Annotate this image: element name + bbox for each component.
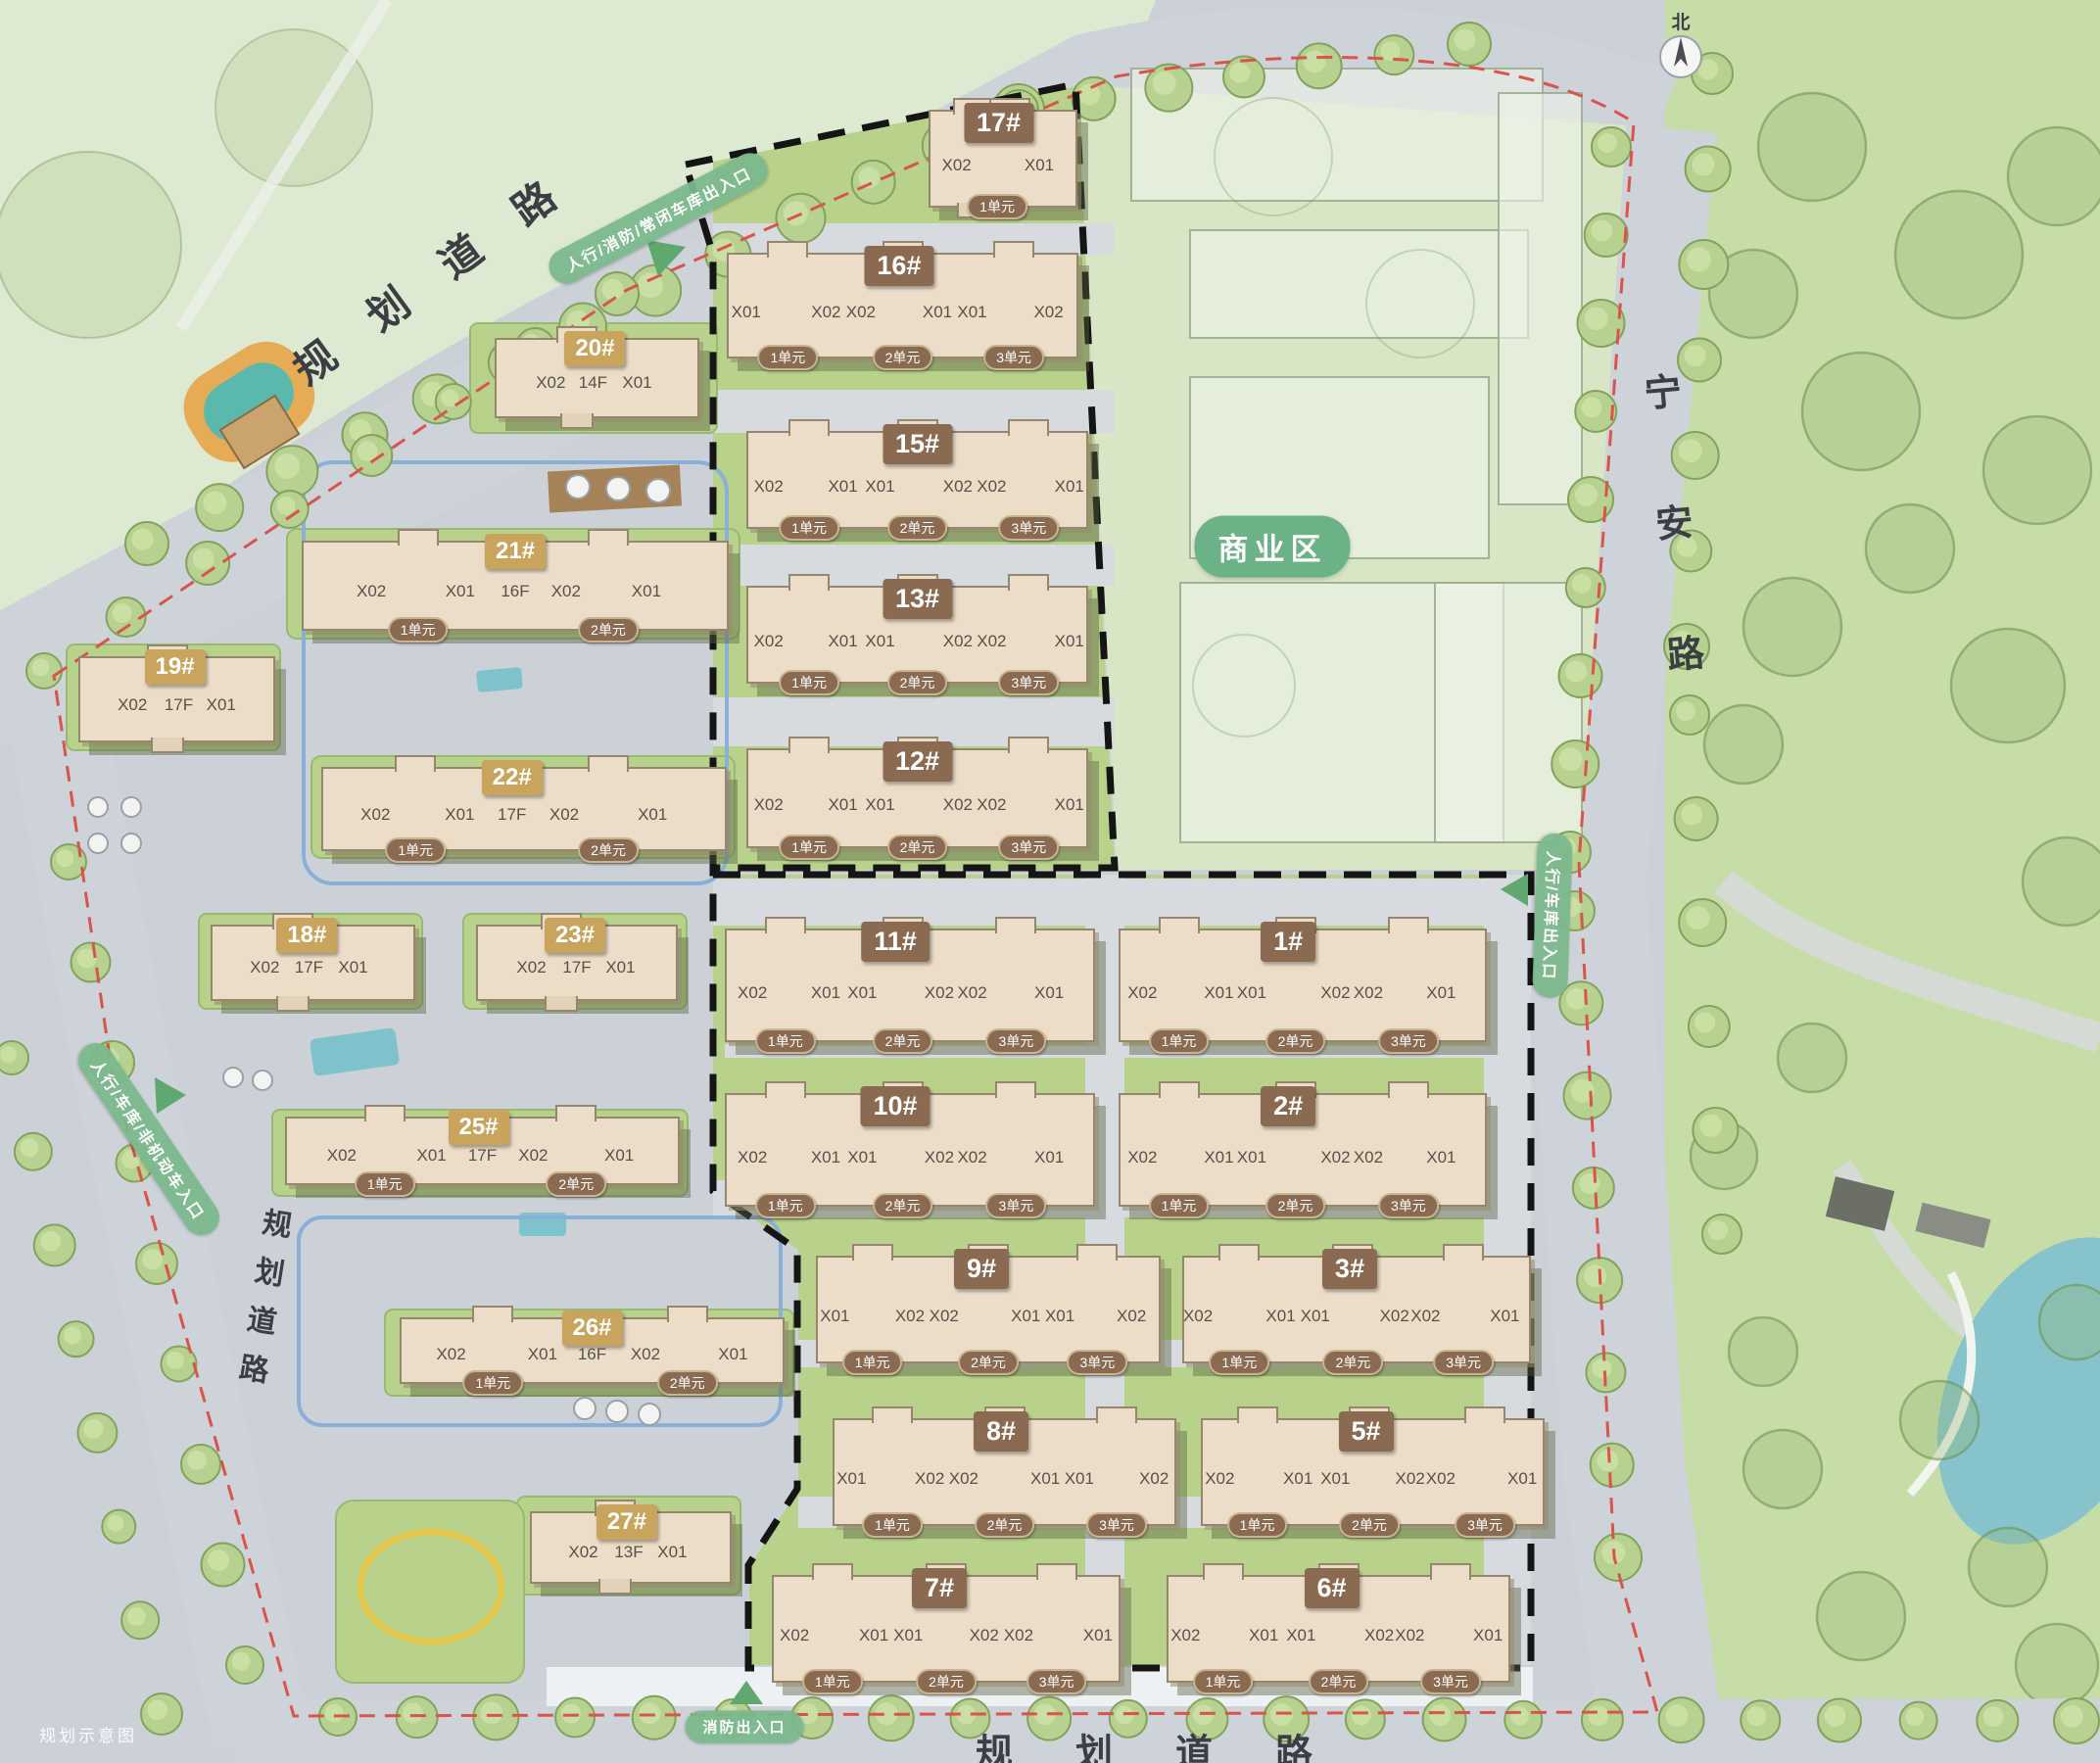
roof-bump — [1237, 1406, 1278, 1423]
roof-bump — [1008, 419, 1049, 436]
unit-type-label: X02 — [811, 303, 840, 322]
roof-bump — [1430, 1563, 1471, 1580]
unit-type-label: X01 — [847, 983, 877, 1003]
unit-type-label: X01 — [828, 477, 857, 497]
building-2: 2#X02X01X01X02X02X011单元2单元3单元 — [1119, 1093, 1487, 1207]
unit-type-label: X02 — [1395, 1626, 1424, 1645]
building-number-badge: 8# — [974, 1411, 1028, 1452]
unit-entrance-label: 3单元 — [986, 1028, 1047, 1054]
roof-bump — [1008, 574, 1049, 591]
building-26: 26#X02X0116FX02X011单元2单元 — [400, 1317, 785, 1384]
unit-type-label: X01 — [957, 303, 986, 322]
unit-type-label: X01 — [1055, 795, 1084, 815]
building-11: 11#X02X01X01X02X02X011单元2单元3单元 — [725, 929, 1095, 1042]
building-number-badge: 6# — [1305, 1568, 1360, 1608]
unit-type-label: X01 — [1265, 1307, 1295, 1326]
unit-type-label: X01 — [207, 695, 236, 715]
building-20: 20#X0214FX01 — [495, 338, 699, 418]
unit-type-label: X01 — [1055, 477, 1084, 497]
unit-type-label: X02 — [895, 1307, 925, 1326]
building-number-badge: 21# — [485, 534, 546, 569]
roof-bump — [1218, 1244, 1260, 1261]
unit-type-label: X02 — [846, 303, 876, 322]
unit-entrance-label: 1单元 — [967, 194, 1027, 219]
unit-type-label: X02 — [970, 1626, 999, 1645]
unit-entrance-label: 2单元 — [1265, 1028, 1326, 1054]
roof-bump — [852, 1244, 893, 1261]
unit-type-label: X01 — [1034, 1148, 1064, 1167]
roof-bump — [767, 241, 808, 258]
unit-type-label: X01 — [859, 1626, 888, 1645]
unit-entrance-label: 2单元 — [1309, 1669, 1369, 1694]
building-number-badge: 26# — [561, 1310, 622, 1346]
roof-bump — [472, 1306, 513, 1322]
unit-type-label: X02 — [977, 795, 1006, 815]
floor-count-label: 17F — [468, 1146, 497, 1166]
unit-type-label: X02 — [549, 805, 579, 825]
unit-entrance-label: 1单元 — [862, 1512, 923, 1538]
unit-type-label: X01 — [1011, 1307, 1040, 1326]
building-25: 25#X02X0117FX02X011单元2单元 — [285, 1117, 680, 1185]
floor-count-label: 14F — [579, 373, 607, 393]
unit-entrance-label: 2单元 — [1339, 1512, 1400, 1538]
unit-type-label: X01 — [605, 958, 635, 977]
unit-type-label: X01 — [1055, 632, 1084, 651]
unit-type-label: X01 — [865, 795, 894, 815]
buildings-layer: 17#X02X011单元16#X01X02X02X01X01X021单元2单元3… — [0, 0, 2100, 1763]
unit-type-label: X01 — [1473, 1626, 1503, 1645]
unit-type-label: X02 — [1380, 1307, 1409, 1326]
unit-type-label: X01 — [1025, 156, 1054, 175]
building-number-badge: 16# — [864, 246, 933, 286]
unit-entrance-label: 1单元 — [755, 1028, 816, 1054]
unit-entrance-label: 3单元 — [1420, 1669, 1481, 1694]
unit-type-label: X02 — [1205, 1469, 1234, 1489]
roof-bump — [1464, 1406, 1505, 1423]
stair-core — [598, 1579, 632, 1595]
unit-type-label: X01 — [1301, 1307, 1330, 1326]
roof-bump — [1008, 737, 1049, 753]
building-number-badge: 20# — [564, 331, 625, 366]
stair-core — [276, 996, 310, 1012]
unit-type-label: X01 — [338, 958, 367, 977]
unit-type-label: X01 — [446, 582, 475, 601]
building-number-badge: 3# — [1322, 1249, 1377, 1289]
unit-type-label: X02 — [1354, 983, 1383, 1003]
unit-type-label: X01 — [1204, 1148, 1233, 1167]
unit-entrance-label: 2单元 — [1265, 1193, 1326, 1218]
unit-entrance-label: 2单元 — [873, 1028, 933, 1054]
building-number-badge: 7# — [912, 1568, 967, 1608]
unit-type-label: X02 — [1364, 1626, 1394, 1645]
unit-entrance-label: 2单元 — [546, 1171, 606, 1197]
roof-bump — [788, 419, 830, 436]
roof-bump — [395, 755, 436, 772]
roof-bump — [995, 1081, 1036, 1098]
stair-core — [545, 996, 578, 1012]
stair-core — [560, 413, 594, 429]
building-number-badge: 9# — [954, 1249, 1009, 1289]
roof-bump — [812, 1563, 853, 1580]
unit-entrance-label: 2单元 — [975, 1512, 1035, 1538]
unit-type-label: X02 — [949, 1469, 978, 1489]
unit-type-label: X02 — [754, 632, 784, 651]
unit-type-label: X02 — [1320, 983, 1350, 1003]
unit-type-label: X02 — [1396, 1469, 1425, 1489]
unit-type-label: X02 — [1004, 1626, 1033, 1645]
unit-type-label: X01 — [811, 983, 840, 1003]
unit-type-label: X01 — [1286, 1626, 1315, 1645]
unit-entrance-label: 1单元 — [755, 1193, 816, 1218]
unit-type-label: X01 — [820, 1307, 849, 1326]
unit-type-label: X01 — [1237, 1148, 1266, 1167]
building-22: 22#X02X0117FX02X011单元2单元 — [321, 767, 727, 851]
unit-entrance-label: 2单元 — [887, 834, 948, 860]
unit-type-label: X02 — [942, 156, 972, 175]
building-number-badge: 27# — [597, 1504, 657, 1540]
unit-type-label: X01 — [622, 373, 651, 393]
unit-type-label: X02 — [738, 1148, 767, 1167]
unit-type-label: X01 — [528, 1345, 557, 1364]
unit-entrance-label: 1单元 — [1149, 1028, 1210, 1054]
unit-type-label: X01 — [1030, 1469, 1060, 1489]
unit-entrance-label: 3单元 — [1086, 1512, 1147, 1538]
building-number-badge: 12# — [883, 741, 952, 782]
unit-type-label: X01 — [865, 632, 894, 651]
roof-bump — [1388, 917, 1429, 933]
floor-count-label: 16F — [578, 1345, 606, 1364]
building-number-badge: 25# — [448, 1110, 508, 1145]
unit-type-label: X02 — [568, 1543, 597, 1562]
floor-count-label: 17F — [562, 958, 591, 977]
unit-type-label: X01 — [632, 582, 661, 601]
unit-entrance-label: 1单元 — [779, 834, 839, 860]
unit-type-label: X01 — [732, 303, 761, 322]
building-number-badge: 1# — [1261, 922, 1315, 962]
unit-type-label: X02 — [925, 983, 954, 1003]
building-number-badge: 13# — [883, 579, 952, 619]
unit-entrance-label: 1单元 — [462, 1370, 523, 1396]
unit-type-label: X01 — [828, 632, 857, 651]
building-number-badge: 15# — [883, 424, 952, 464]
unit-entrance-label: 1单元 — [757, 345, 818, 370]
unit-type-label: X01 — [1490, 1307, 1519, 1326]
roof-bump — [398, 529, 439, 546]
building-number-badge: 22# — [482, 760, 543, 795]
unit-type-label: X01 — [1065, 1469, 1094, 1489]
building-16: 16#X01X02X02X01X01X021单元2单元3单元 — [727, 253, 1078, 358]
unit-entrance-label: 3单元 — [983, 345, 1044, 370]
unit-type-label: X02 — [1127, 1148, 1157, 1167]
unit-entrance-label: 1单元 — [1149, 1193, 1210, 1218]
floor-count-label: 16F — [501, 582, 529, 601]
unit-type-label: X02 — [1117, 1307, 1146, 1326]
roof-bump — [1159, 1081, 1200, 1098]
building-number-badge: 18# — [276, 918, 337, 953]
unit-entrance-label: 3单元 — [998, 515, 1059, 541]
building-12: 12#X02X01X01X02X02X011单元2单元3单元 — [746, 748, 1088, 848]
unit-type-label: X02 — [518, 1146, 548, 1166]
unit-entrance-label: 1单元 — [355, 1171, 415, 1197]
unit-entrance-label: 3单元 — [1378, 1028, 1439, 1054]
unit-type-label: X01 — [865, 477, 894, 497]
roof-bump — [1036, 1563, 1077, 1580]
roof-bump — [995, 917, 1036, 933]
unit-type-label: X02 — [977, 477, 1006, 497]
unit-type-label: X02 — [1354, 1148, 1383, 1167]
unit-type-label: X02 — [738, 983, 767, 1003]
unit-type-label: X01 — [893, 1626, 923, 1645]
unit-type-label: X01 — [923, 303, 952, 322]
unit-type-label: X01 — [1507, 1469, 1537, 1489]
building-15: 15#X02X01X01X02X02X011单元2单元3单元 — [746, 431, 1088, 529]
building-number-badge: 2# — [1261, 1086, 1315, 1126]
unit-type-label: X02 — [327, 1146, 357, 1166]
unit-entrance-label: 2单元 — [887, 515, 948, 541]
roof-bump — [1443, 1244, 1484, 1261]
building-27: 27#X0213FX01 — [530, 1511, 732, 1584]
unit-type-label: X02 — [1320, 1148, 1350, 1167]
unit-type-label: X01 — [604, 1146, 634, 1166]
unit-type-label: X01 — [417, 1146, 447, 1166]
unit-type-label: X01 — [811, 1148, 840, 1167]
unit-type-label: X02 — [1426, 1469, 1456, 1489]
unit-type-label: X02 — [977, 632, 1006, 651]
unit-type-label: X02 — [957, 983, 986, 1003]
unit-type-label: X02 — [943, 632, 973, 651]
building-number-badge: 11# — [861, 922, 930, 962]
roof-bump — [1203, 1563, 1244, 1580]
unit-entrance-label: 3单元 — [1455, 1512, 1515, 1538]
unit-entrance-label: 3单元 — [998, 670, 1059, 695]
unit-type-label: X02 — [1410, 1307, 1440, 1326]
unit-entrance-label: 1单元 — [385, 837, 446, 863]
building-number-badge: 17# — [964, 103, 1033, 143]
unit-type-label: X02 — [957, 1148, 986, 1167]
building-6: 6#X02X01X01X02X02X011单元2单元3单元 — [1167, 1575, 1510, 1683]
unit-entrance-label: 1单元 — [1193, 1669, 1254, 1694]
building-7: 7#X02X01X01X02X02X011单元2单元3单元 — [772, 1575, 1121, 1683]
unit-entrance-label: 3单元 — [1433, 1350, 1494, 1375]
building-13: 13#X02X01X01X02X02X011单元2单元3单元 — [746, 586, 1088, 684]
unit-type-label: X02 — [1183, 1307, 1213, 1326]
roof-bump — [1096, 1406, 1137, 1423]
roof-bump — [1159, 917, 1200, 933]
unit-type-label: X02 — [1033, 303, 1063, 322]
roof-bump — [364, 1105, 406, 1121]
unit-type-label: X02 — [631, 1345, 660, 1364]
unit-type-label: X02 — [754, 477, 784, 497]
unit-entrance-label: 1单元 — [779, 515, 839, 541]
unit-type-label: X01 — [1426, 983, 1456, 1003]
unit-entrance-label: 2单元 — [887, 670, 948, 695]
unit-type-label: X01 — [1204, 983, 1233, 1003]
building-3: 3#X02X01X01X02X02X011单元2单元3单元 — [1182, 1256, 1531, 1363]
unit-entrance-label: 1单元 — [1209, 1350, 1269, 1375]
unit-type-label: X02 — [118, 695, 147, 715]
unit-entrance-label: 1单元 — [779, 670, 839, 695]
building-18: 18#X0217FX01 — [211, 925, 415, 1001]
roof-bump — [555, 1105, 597, 1121]
building-23: 23#X0217FX01 — [476, 925, 678, 1001]
building-10: 10#X02X01X01X02X02X011单元2单元3单元 — [725, 1093, 1095, 1207]
unit-type-label: X02 — [1127, 983, 1157, 1003]
floor-count-label: 17F — [295, 958, 323, 977]
unit-type-label: X02 — [436, 1345, 465, 1364]
unit-type-label: X02 — [551, 582, 581, 601]
building-number-badge: 10# — [861, 1086, 931, 1126]
building-number-badge: 19# — [144, 649, 205, 685]
roof-bump — [765, 917, 806, 933]
unit-type-label: X02 — [930, 1307, 959, 1326]
unit-type-label: X01 — [1426, 1148, 1456, 1167]
unit-entrance-label: 1单元 — [802, 1669, 863, 1694]
building-19: 19#X0217FX01 — [78, 656, 275, 742]
unit-type-label: X02 — [915, 1469, 944, 1489]
roof-bump — [588, 755, 629, 772]
unit-type-label: X02 — [943, 795, 973, 815]
building-number-badge: 5# — [1339, 1411, 1394, 1452]
stair-core — [151, 738, 184, 753]
site-plan: { "plan_caption": "规划示意图", "compass": { … — [0, 0, 2100, 1763]
unit-entrance-label: 1单元 — [842, 1350, 903, 1375]
roof-bump — [788, 574, 830, 591]
building-number-badge: 23# — [545, 918, 605, 953]
unit-type-label: X02 — [1170, 1626, 1200, 1645]
roof-bump — [765, 1081, 806, 1098]
unit-entrance-label: 2单元 — [873, 1193, 933, 1218]
unit-entrance-label: 1单元 — [388, 617, 449, 643]
unit-entrance-label: 1单元 — [1227, 1512, 1288, 1538]
unit-type-label: X01 — [1083, 1626, 1113, 1645]
unit-type-label: X01 — [445, 805, 474, 825]
unit-type-label: X01 — [1045, 1307, 1074, 1326]
unit-type-label: X01 — [1283, 1469, 1312, 1489]
floor-count-label: 13F — [614, 1543, 643, 1562]
unit-type-label: X01 — [1320, 1469, 1350, 1489]
unit-type-label: X02 — [357, 582, 386, 601]
unit-type-label: X02 — [1139, 1469, 1169, 1489]
unit-entrance-label: 3单元 — [986, 1193, 1047, 1218]
unit-entrance-label: 3单元 — [1067, 1350, 1127, 1375]
unit-type-label: X01 — [1249, 1626, 1278, 1645]
roof-bump — [993, 241, 1034, 258]
unit-type-label: X01 — [1034, 983, 1064, 1003]
unit-type-label: X02 — [250, 958, 279, 977]
building-8: 8#X01X02X02X01X01X021单元2单元3单元 — [833, 1418, 1176, 1526]
unit-entrance-label: 2单元 — [657, 1370, 718, 1396]
building-21: 21#X02X0116FX02X011单元2单元 — [302, 541, 729, 631]
unit-type-label: X02 — [754, 795, 784, 815]
unit-type-label: X02 — [536, 373, 565, 393]
unit-type-label: X02 — [943, 477, 973, 497]
unit-type-label: X02 — [925, 1148, 954, 1167]
roof-bump — [872, 1406, 913, 1423]
unit-entrance-label: 2单元 — [1323, 1350, 1384, 1375]
unit-type-label: X01 — [657, 1543, 687, 1562]
unit-entrance-label: 2单元 — [578, 837, 639, 863]
roof-bump — [788, 737, 830, 753]
roof-bump — [1388, 1081, 1429, 1098]
unit-entrance-label: 3单元 — [998, 834, 1059, 860]
roof-bump — [588, 529, 629, 546]
building-1: 1#X02X01X01X02X02X011单元2单元3单元 — [1119, 929, 1487, 1042]
roof-bump — [667, 1306, 708, 1322]
unit-type-label: X01 — [718, 1345, 747, 1364]
building-5: 5#X02X01X01X02X02X011单元2单元3单元 — [1201, 1418, 1545, 1526]
unit-type-label: X02 — [360, 805, 390, 825]
unit-type-label: X01 — [638, 805, 667, 825]
building-17: 17#X02X011单元 — [929, 110, 1077, 208]
building-9: 9#X01X02X02X01X01X021单元2单元3单元 — [816, 1256, 1161, 1363]
unit-entrance-label: 3单元 — [1378, 1193, 1439, 1218]
roof-bump — [1076, 1244, 1118, 1261]
unit-entrance-label: 2单元 — [958, 1350, 1019, 1375]
unit-type-label: X01 — [836, 1469, 866, 1489]
unit-entrance-label: 2单元 — [916, 1669, 977, 1694]
unit-type-label: X01 — [828, 795, 857, 815]
floor-count-label: 17F — [165, 695, 193, 715]
unit-entrance-label: 3单元 — [1026, 1669, 1087, 1694]
unit-type-label: X02 — [780, 1626, 809, 1645]
unit-entrance-label: 2单元 — [873, 345, 933, 370]
unit-type-label: X01 — [847, 1148, 877, 1167]
floor-count-label: 17F — [498, 805, 526, 825]
unit-type-label: X01 — [1237, 983, 1266, 1003]
unit-entrance-label: 2单元 — [578, 617, 639, 643]
unit-type-label: X02 — [516, 958, 546, 977]
